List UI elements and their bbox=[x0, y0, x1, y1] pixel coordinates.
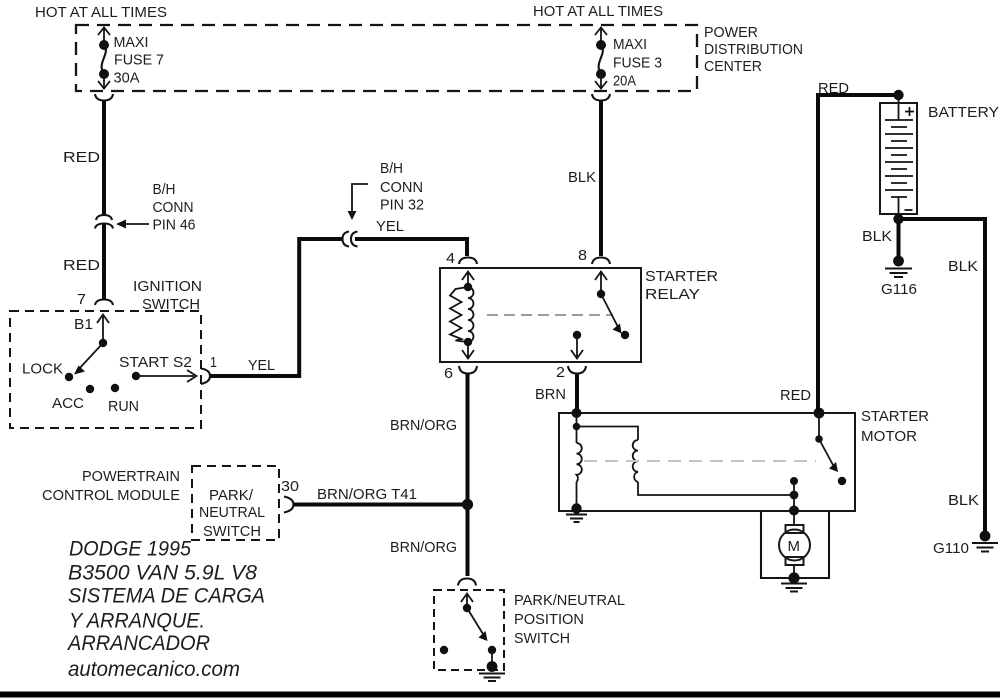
svg-text:PIN 32: PIN 32 bbox=[380, 197, 424, 214]
svg-text:7: 7 bbox=[77, 291, 86, 308]
svg-text:RED: RED bbox=[63, 149, 100, 166]
svg-text:RED: RED bbox=[63, 257, 100, 274]
svg-text:4: 4 bbox=[446, 250, 455, 267]
svg-text:MAXI: MAXI bbox=[613, 36, 647, 53]
svg-text:YEL: YEL bbox=[376, 218, 404, 235]
svg-text:PARK/NEUTRAL: PARK/NEUTRAL bbox=[514, 592, 625, 609]
svg-text:STARTER: STARTER bbox=[861, 408, 929, 425]
svg-text:CONTROL MODULE: CONTROL MODULE bbox=[42, 487, 180, 504]
svg-text:MAXI: MAXI bbox=[114, 34, 149, 51]
svg-text:DISTRIBUTION: DISTRIBUTION bbox=[704, 41, 803, 58]
svg-text:STARTER: STARTER bbox=[645, 268, 718, 285]
svg-text:BRN/ORG T41: BRN/ORG T41 bbox=[317, 486, 417, 503]
svg-text:RED: RED bbox=[818, 80, 849, 97]
svg-text:POWER: POWER bbox=[704, 24, 758, 41]
svg-text:BRN: BRN bbox=[535, 386, 566, 403]
svg-text:RED: RED bbox=[780, 387, 811, 404]
svg-text:30: 30 bbox=[281, 478, 299, 495]
svg-text:LOCK: LOCK bbox=[22, 361, 63, 378]
svg-text:BLK: BLK bbox=[862, 228, 892, 245]
svg-text:DODGE 1995: DODGE 1995 bbox=[69, 538, 191, 561]
svg-text:BRN/ORG: BRN/ORG bbox=[390, 417, 457, 434]
svg-text:BLK: BLK bbox=[948, 258, 978, 275]
svg-text:PARK/: PARK/ bbox=[209, 487, 254, 504]
svg-text:BRN/ORG: BRN/ORG bbox=[390, 539, 457, 556]
svg-text:ARRANCADOR: ARRANCADOR bbox=[66, 632, 210, 655]
svg-text:BLK: BLK bbox=[948, 492, 979, 509]
svg-text:START S2: START S2 bbox=[119, 354, 192, 371]
svg-text:HOT AT ALL TIMES: HOT AT ALL TIMES bbox=[35, 4, 167, 21]
svg-text:YEL: YEL bbox=[248, 357, 275, 374]
svg-text:6: 6 bbox=[444, 365, 453, 382]
svg-text:B/H: B/H bbox=[153, 181, 176, 198]
svg-text:CENTER: CENTER bbox=[704, 58, 762, 75]
svg-text:G116: G116 bbox=[881, 281, 917, 298]
svg-text:IGNITION: IGNITION bbox=[133, 278, 202, 295]
svg-text:B/H: B/H bbox=[380, 160, 403, 177]
svg-text:FUSE 3: FUSE 3 bbox=[613, 55, 662, 72]
svg-text:8: 8 bbox=[578, 247, 587, 264]
svg-text:BLK: BLK bbox=[568, 169, 596, 186]
svg-text:NEUTRAL: NEUTRAL bbox=[199, 504, 265, 521]
svg-text:RELAY: RELAY bbox=[645, 286, 700, 303]
svg-text:CONN: CONN bbox=[380, 179, 423, 196]
svg-text:MOTOR: MOTOR bbox=[861, 428, 917, 445]
svg-text:RUN: RUN bbox=[108, 398, 139, 415]
svg-text:SWITCH: SWITCH bbox=[203, 523, 261, 540]
svg-text:20A: 20A bbox=[613, 73, 636, 90]
svg-text:BATTERY: BATTERY bbox=[928, 104, 999, 121]
svg-text:30A: 30A bbox=[114, 70, 140, 87]
svg-text:POWERTRAIN: POWERTRAIN bbox=[82, 468, 180, 485]
svg-text:automecanico.com: automecanico.com bbox=[68, 658, 240, 681]
svg-text:1: 1 bbox=[210, 354, 217, 371]
svg-text:B1: B1 bbox=[74, 316, 93, 333]
svg-text:Y ARRANQUE.: Y ARRANQUE. bbox=[69, 610, 205, 633]
svg-text:ACC: ACC bbox=[52, 395, 84, 412]
svg-text:G110: G110 bbox=[933, 540, 969, 557]
svg-text:POSITION: POSITION bbox=[514, 611, 584, 628]
svg-text:M: M bbox=[788, 538, 801, 555]
svg-text:CONN: CONN bbox=[153, 199, 194, 216]
svg-text:HOT AT ALL TIMES: HOT AT ALL TIMES bbox=[533, 3, 663, 20]
svg-text:SWITCH: SWITCH bbox=[514, 630, 570, 647]
svg-text:FUSE 7: FUSE 7 bbox=[114, 52, 164, 69]
svg-text:SISTEMA DE CARGA: SISTEMA DE CARGA bbox=[68, 585, 265, 608]
svg-text:2: 2 bbox=[556, 364, 565, 381]
svg-text:B3500 VAN 5.9L V8: B3500 VAN 5.9L V8 bbox=[68, 562, 257, 585]
svg-text:PIN 46: PIN 46 bbox=[153, 217, 196, 234]
